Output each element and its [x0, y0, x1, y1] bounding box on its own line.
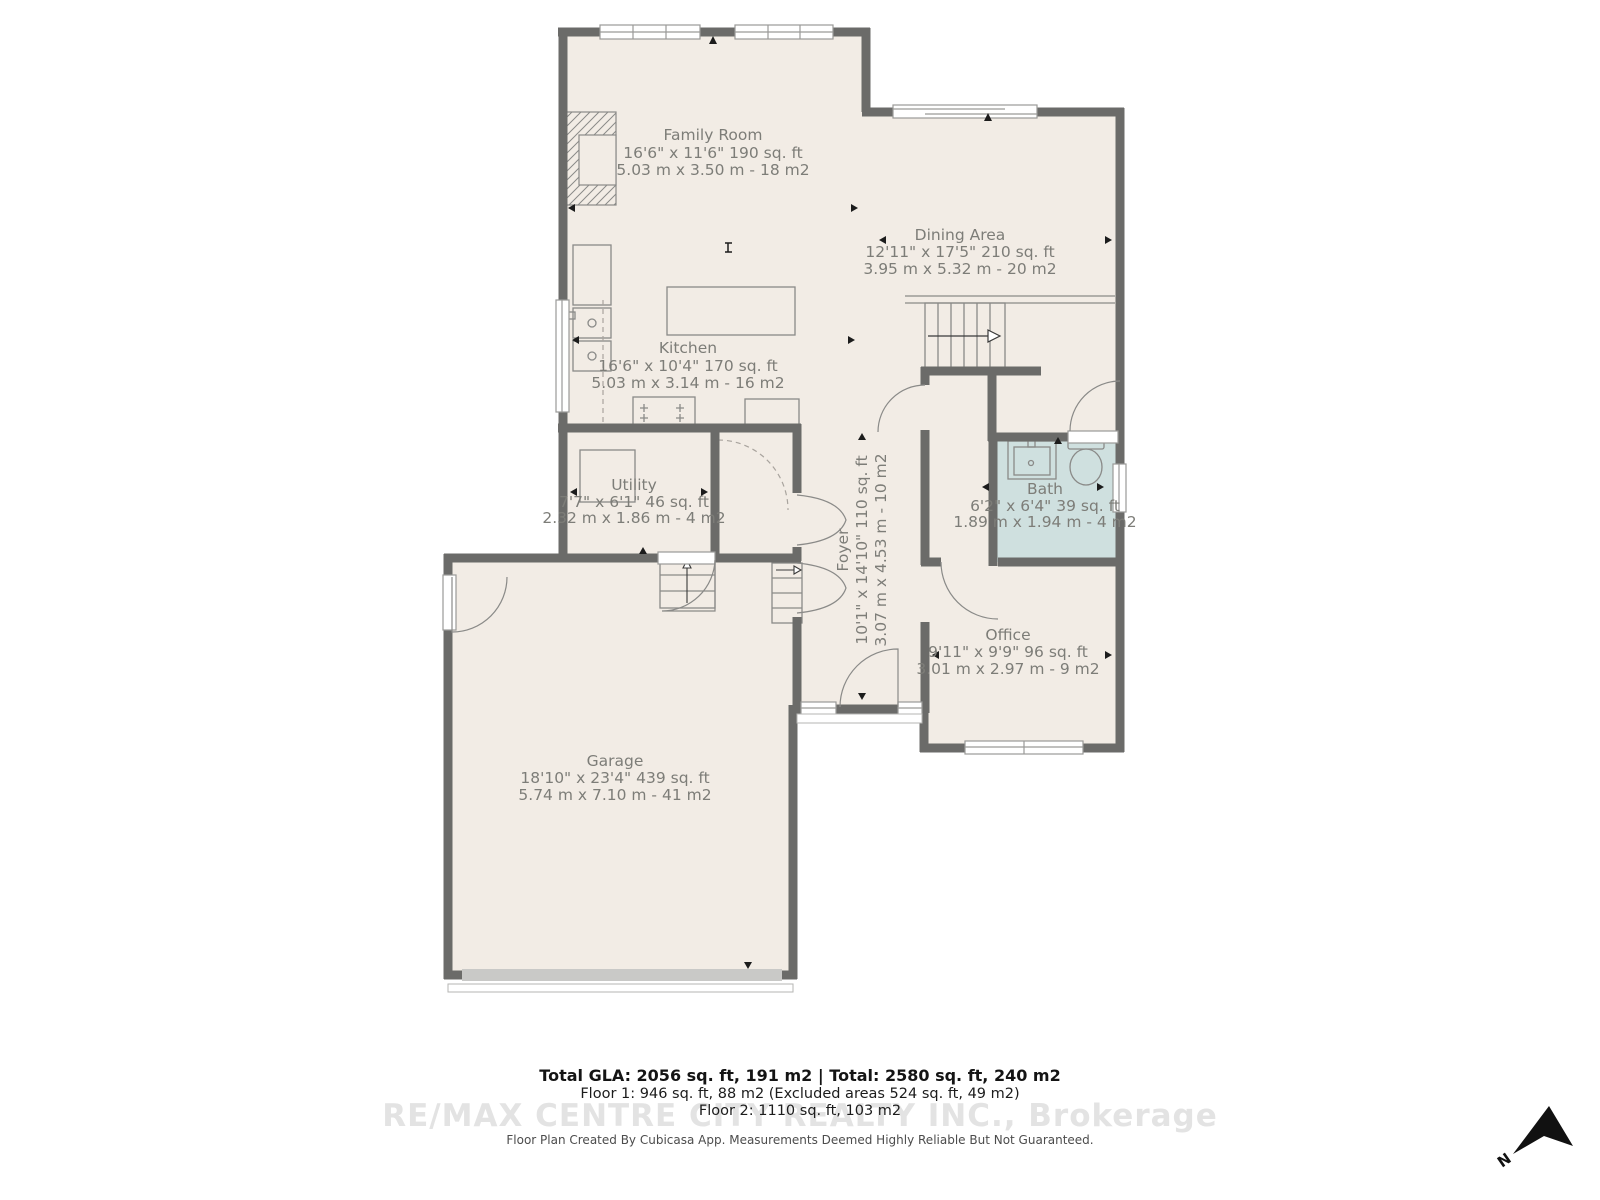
svg-text:Foyer: Foyer	[834, 528, 852, 572]
svg-text:5.03 m x 3.14 m - 16 m2: 5.03 m x 3.14 m - 16 m2	[591, 374, 784, 392]
floor-plan-page: Family Room 16'6" x 11'6" 190 sq. ft 5.0…	[0, 0, 1600, 1200]
svg-text:3.01 m x 2.97 m - 9 m2: 3.01 m x 2.97 m - 9 m2	[916, 660, 1099, 678]
svg-text:Office: Office	[985, 626, 1030, 644]
floor-plan-drawing: Family Room 16'6" x 11'6" 190 sq. ft 5.0…	[0, 0, 1600, 1200]
svg-text:5.03 m x 3.50 m - 18 m2: 5.03 m x 3.50 m - 18 m2	[616, 161, 809, 179]
svg-text:9'11" x 9'9" 96 sq. ft: 9'11" x 9'9" 96 sq. ft	[928, 643, 1088, 661]
svg-text:2.32 m x 1.86 m - 4 m2: 2.32 m x 1.86 m - 4 m2	[542, 509, 725, 527]
svg-text:18'10" x 23'4" 439 sq. ft: 18'10" x 23'4" 439 sq. ft	[520, 769, 709, 787]
family-room-window-1	[600, 25, 700, 39]
floor2-area-text: Floor 2: 1110 sq. ft, 103 m2	[0, 1103, 1600, 1119]
garage-house-doorway	[658, 552, 715, 564]
fireplace	[563, 112, 616, 205]
garage-door	[462, 969, 782, 981]
svg-text:16'6" x 10'4" 170 sq. ft: 16'6" x 10'4" 170 sq. ft	[598, 357, 777, 375]
svg-text:Dining Area: Dining Area	[915, 226, 1006, 244]
svg-text:Bath: Bath	[1027, 480, 1063, 498]
svg-text:Kitchen: Kitchen	[659, 339, 717, 357]
svg-text:Utility: Utility	[611, 476, 657, 494]
entry-apron	[797, 714, 922, 723]
svg-text:12'11" x 17'5" 210 sq. ft: 12'11" x 17'5" 210 sq. ft	[865, 243, 1054, 261]
dining-sliding-window	[893, 105, 1037, 118]
bath-doorway	[1068, 431, 1118, 443]
compass-north-label: N	[1494, 1149, 1515, 1171]
svg-text:3.95 m x 5.32 m - 20 m2: 3.95 m x 5.32 m - 20 m2	[863, 260, 1056, 278]
svg-text:3.07 m x 4.53 m - 10 m2: 3.07 m x 4.53 m - 10 m2	[872, 453, 890, 646]
total-gla-text: Total GLA: 2056 sq. ft, 191 m2 | Total: …	[0, 1066, 1600, 1085]
kitchen-window	[556, 300, 569, 412]
garage-apron	[448, 984, 793, 992]
family-room-window-2	[735, 25, 833, 39]
svg-text:Garage: Garage	[587, 752, 644, 770]
svg-text:10'1" x 14'10" 110 sq. ft: 10'1" x 14'10" 110 sq. ft	[853, 455, 871, 644]
svg-text:Family Room: Family Room	[664, 126, 763, 144]
floor1-area-text: Floor 1: 946 sq. ft, 88 m2 (Excluded are…	[0, 1086, 1600, 1102]
office-window	[965, 741, 1083, 754]
disclaimer-text: Floor Plan Created By Cubicasa App. Meas…	[0, 1133, 1600, 1147]
svg-text:5.74 m x 7.10 m - 41 m2: 5.74 m x 7.10 m - 41 m2	[518, 786, 711, 804]
svg-text:16'6" x 11'6" 190 sq. ft: 16'6" x 11'6" 190 sq. ft	[623, 144, 802, 162]
svg-text:1.89 m x 1.94 m - 4 m2: 1.89 m x 1.94 m - 4 m2	[953, 513, 1136, 531]
